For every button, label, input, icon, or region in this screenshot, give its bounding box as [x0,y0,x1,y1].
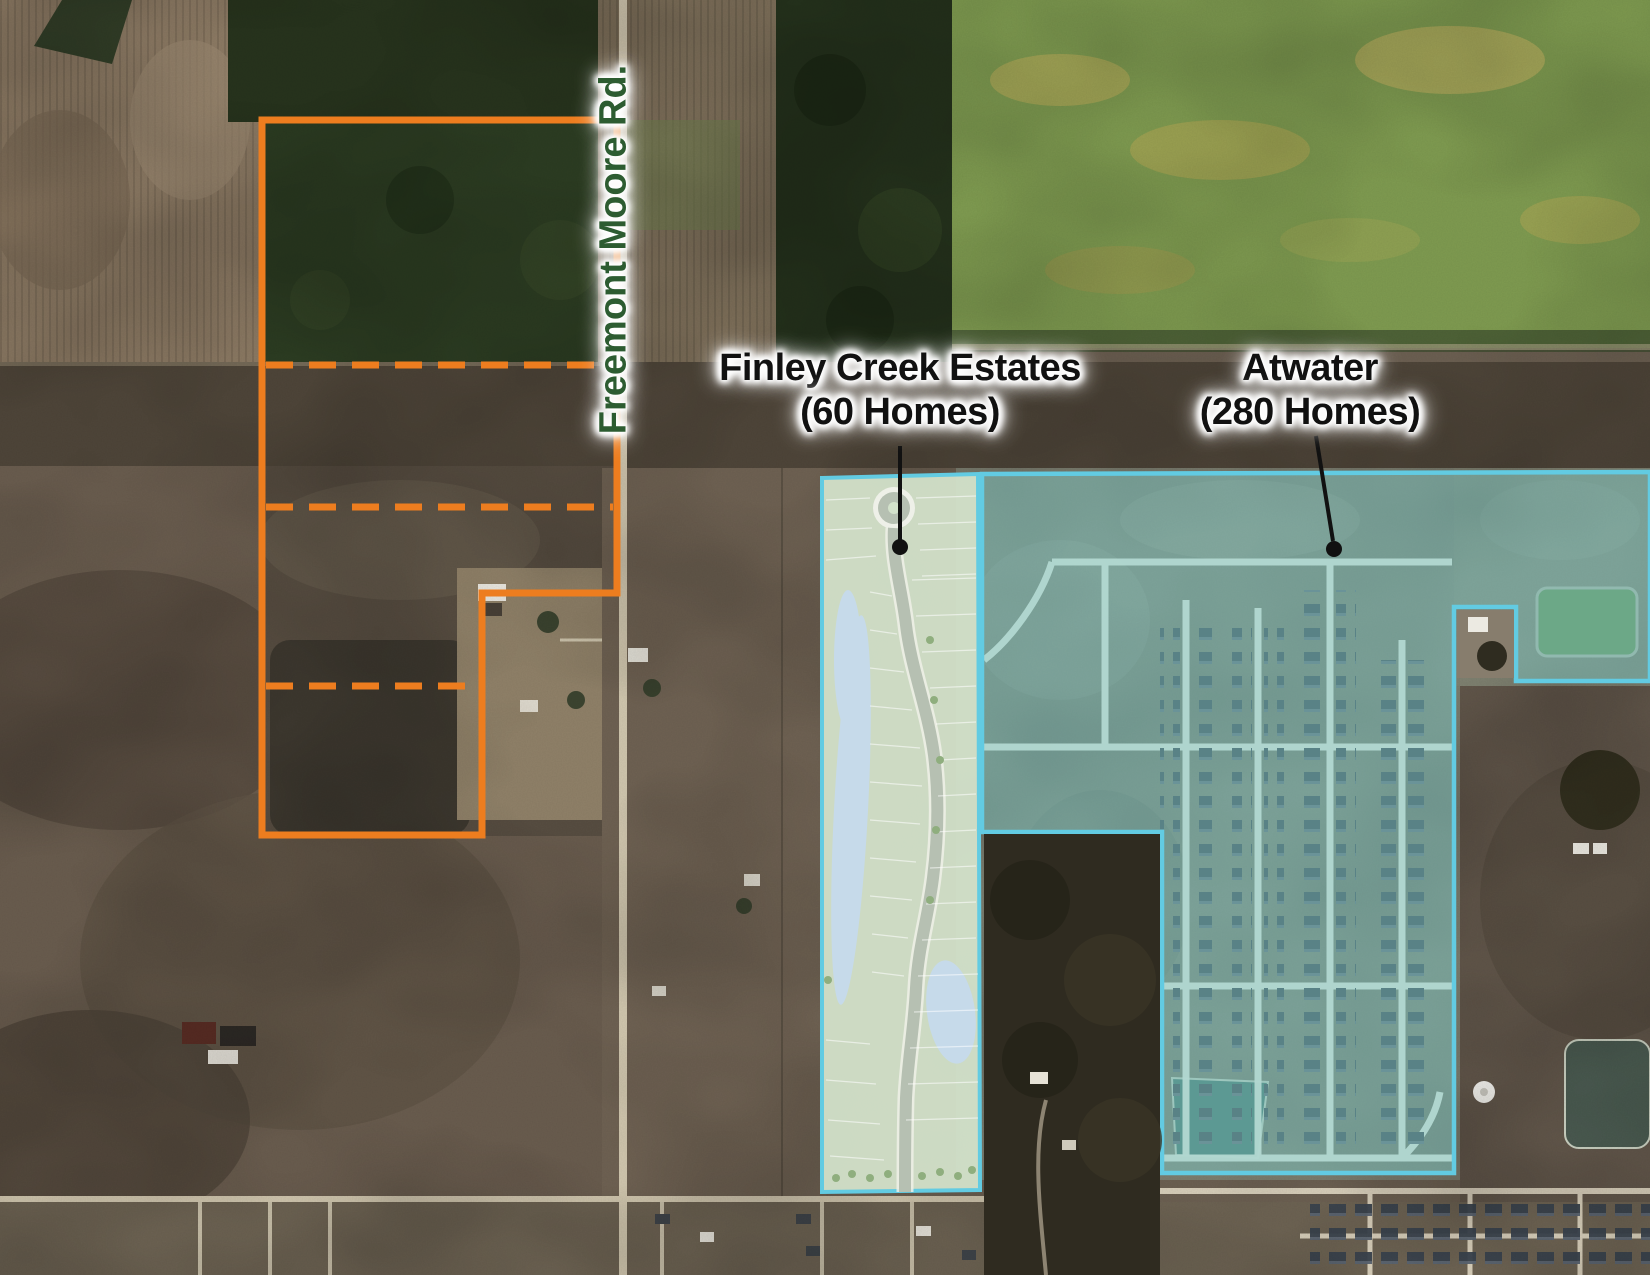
road-label: Freemont Moore Rd. [593,60,636,440]
finley-label-line1: Finley Creek Estates [700,346,1100,390]
aerial-underlay [0,0,1650,1275]
finley-label-line2: (60 Homes) [700,390,1100,434]
finley-leader-dot [892,539,908,555]
aerial-map: Freemont Moore Rd. Finley Creek Estates … [0,0,1650,1275]
finley-area [822,474,982,1192]
atwater-label-line1: Atwater [1110,346,1510,390]
atwater-label-line2: (280 Homes) [1110,390,1510,434]
atwater-leader-dot [1326,541,1342,557]
forest-notch [984,834,1162,1275]
farmstead-notch [1457,610,1514,678]
finley-label: Finley Creek Estates (60 Homes) [700,346,1100,434]
atwater-label: Atwater (280 Homes) [1110,346,1510,434]
